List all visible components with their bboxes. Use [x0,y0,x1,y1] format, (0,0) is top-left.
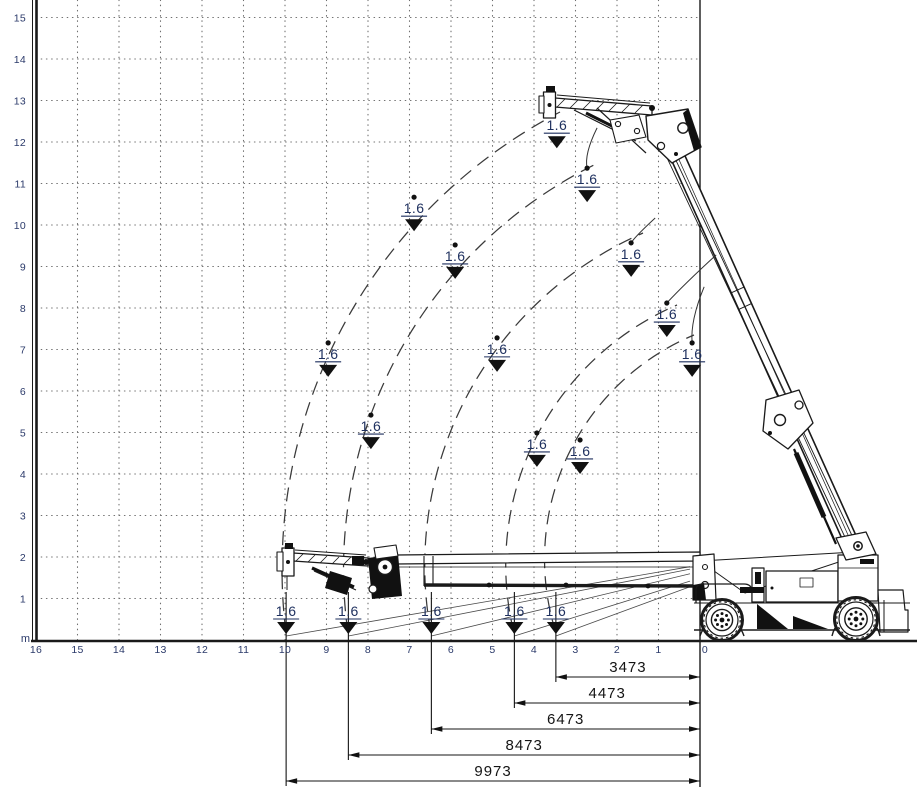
capacity-triangle-icon [683,365,701,377]
dimension-value: 4473 [588,685,625,702]
marker-dot [577,437,582,442]
wheel-bolt [714,619,717,622]
x-axis-tick-label: 6 [448,644,454,656]
arc-extension-1 [545,335,694,633]
capacity-marker: 1.6 [484,335,510,372]
marker-dot [494,335,499,340]
y-axis-tick-label: 1 [20,594,26,606]
x-axis-tick-label: 0 [702,644,708,656]
x-axis-tick-label: 2 [614,644,620,656]
wheel-bolt [850,613,853,616]
capacity-label: 1.6 [570,443,591,459]
dimension-arrow-right [689,726,700,732]
y-axis-tick-label: 14 [14,54,26,66]
wheel-bolt [859,622,862,625]
wheel-bolt [861,618,864,621]
capacity-marker: 1.6 [501,603,527,634]
capacity-label: 1.6 [487,341,508,357]
wheel-bolt [859,613,862,616]
y-axis-tick-label: 11 [15,179,27,191]
capacity-marker: 1.6 [335,603,361,634]
dimension-arrow-left [286,778,297,784]
capacity-triangle-icon [658,325,676,337]
capacity-label: 1.6 [682,346,703,362]
truck-chassis [693,532,910,641]
wheel-bolt [716,623,719,626]
capacity-marker: 1.6 [574,128,600,202]
capacity-marker: 1.6 [543,603,569,634]
y-axis-unit-label: m [21,633,30,645]
marker-dot [629,240,634,245]
x-axis-tick-label: 8 [365,644,371,656]
x-axis-tick-label: 1 [655,644,661,656]
working-envelope-diagram: 34734473647384739973 [0,0,917,800]
capacity-triangle-icon [528,455,546,467]
capacity-marker: 1.6 [315,340,341,377]
x-axis-tick-label: 3 [572,644,578,656]
capacity-label: 1.6 [577,171,598,187]
marker-leader-line [631,218,655,243]
capacity-triangle-icon [362,437,380,449]
y-axis-tick-label: 9 [20,262,26,274]
capacity-marker: 1.6 [401,195,427,232]
capacity-triangle-icon [339,622,357,634]
wheel-bolt [721,612,724,615]
y-axis-tick-label: 7 [20,345,26,357]
capacity-marker: 1.6 [544,117,570,148]
y-axis-tick-label: 2 [20,552,26,564]
lowered-boom-ray [514,581,690,636]
wheel-bolt [725,623,728,626]
dimension-arrow-left [348,752,359,758]
capacity-triangle-icon [446,267,464,279]
marker-dot [368,412,373,417]
capacity-triangle-icon [488,360,506,372]
capacity-label: 1.6 [361,418,382,434]
capacity-label: 1.6 [656,306,677,322]
marker-dot [453,242,458,247]
dimension-value: 9973 [474,763,511,780]
dimension-arrow-left [556,674,567,680]
y-axis-tick-label: 3 [20,511,26,523]
capacity-triangle-icon [622,265,640,277]
capacity-label: 1.6 [276,603,297,619]
capacity-marker: 1.6 [679,287,705,377]
y-axis-tick-label: 13 [14,96,26,108]
capacity-marker: 1.6 [273,603,299,634]
wheel-bolt [721,625,724,628]
capacity-marker: 1.6 [442,242,468,279]
capacity-label: 1.6 [504,603,525,619]
x-axis-tick-label: 7 [406,644,412,656]
x-axis-tick-label: 11 [238,644,250,656]
marker-dot [585,166,590,171]
x-axis-tick-label: 12 [196,644,208,656]
dimension-arrow-left [514,700,525,706]
marker-dot [664,300,669,305]
capacity-triangle-icon [422,622,440,634]
y-axis-tick-label: 4 [20,469,26,481]
x-axis-tick-label: 16 [30,644,42,656]
wheel-bolt [716,614,719,617]
capacity-label: 1.6 [318,346,339,362]
dimension-arrow-right [689,778,700,784]
y-axis-tick-label: 8 [20,303,26,315]
machine-side-view [277,86,910,641]
capacity-triangle-icon [578,190,596,202]
marker-dot [326,340,331,345]
capacity-marker: 1.6 [524,430,550,467]
marker-dot [690,340,695,345]
wheel-bolt [725,614,728,617]
x-axis-tick-label: 4 [531,644,537,656]
capacity-label: 1.6 [621,246,642,262]
x-axis-tick-label: 5 [489,644,495,656]
lowered-boom-ray [556,587,690,636]
capacity-label: 1.6 [404,200,425,216]
x-axis-tick-label: 13 [154,644,166,656]
dimension-value: 3473 [609,659,646,676]
grid-lines [36,0,700,641]
dimension-arrow-right [689,752,700,758]
capacity-marker: 1.6 [618,218,655,277]
y-axis-tick-label: 10 [14,220,26,232]
x-axis-tick-label: 9 [323,644,329,656]
capacity-triangle-icon [505,622,523,634]
load-chart-page: { "axes": { "unit_label": "m", "x_ticks"… [0,0,917,800]
y-axis-tick-label: 6 [20,386,26,398]
capacity-triangle-icon [571,462,589,474]
capacity-marker: 1.6 [567,437,593,474]
marker-leader-line [587,128,598,168]
capacity-label: 1.6 [546,603,567,619]
wheel-bolt [727,619,730,622]
capacity-triangle-icon [547,622,565,634]
capacity-triangle-icon [277,622,295,634]
dimension-arrow-left [431,726,442,732]
capacity-label: 1.6 [338,603,359,619]
y-axis-tick-label: 15 [14,13,26,25]
capacity-label: 1.6 [421,603,442,619]
marker-dot [411,195,416,200]
rear-wheel [835,598,878,641]
dimension-arrow-right [689,700,700,706]
marker-leader-line [667,255,716,303]
dimension-value: 6473 [547,711,584,728]
boom-horizontal [277,543,700,599]
capacity-marker: 1.6 [654,255,716,337]
y-axis-tick-label: 12 [14,137,26,149]
capacity-label: 1.6 [445,248,466,264]
dimension-value: 8473 [505,737,542,754]
front-wheel [702,600,743,641]
wheel-bolt [855,611,858,614]
capacity-marker: 1.6 [418,603,444,634]
wheel-bolt [850,622,853,625]
y-axis-tick-label: 5 [20,428,26,440]
x-axis-tick-label: 10 [279,644,291,656]
dimension-arrow-right [689,674,700,680]
marker-dot [534,430,539,435]
dimension-row: 3473 [556,592,700,682]
wheel-bolt [855,624,858,627]
capacity-label: 1.6 [527,436,548,452]
x-axis-tick-label: 15 [71,644,83,656]
wheel-bolt [848,618,851,621]
x-axis-tick-label: 14 [113,644,125,656]
capacity-marker: 1.6 [358,412,384,449]
capacity-label: 1.6 [546,117,567,133]
